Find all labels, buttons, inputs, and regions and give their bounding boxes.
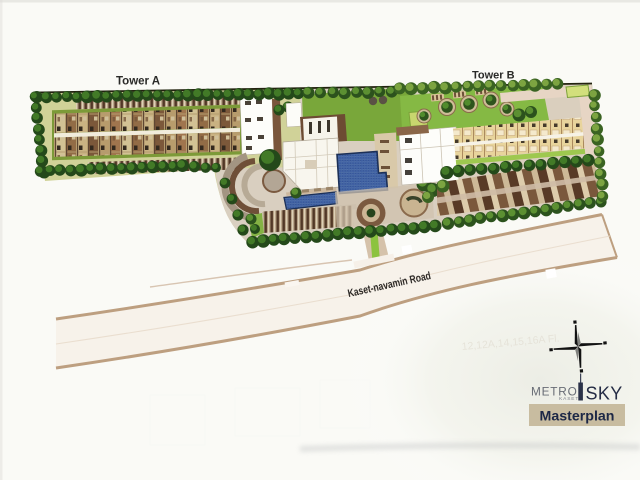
svg-text:Masterplan: Masterplan — [540, 409, 615, 425]
svg-text:KASET: KASET — [559, 396, 579, 402]
svg-text:Tower B: Tower B — [472, 70, 515, 82]
svg-text:Tower A: Tower A — [116, 76, 160, 88]
svg-text:SKY: SKY — [586, 384, 623, 404]
